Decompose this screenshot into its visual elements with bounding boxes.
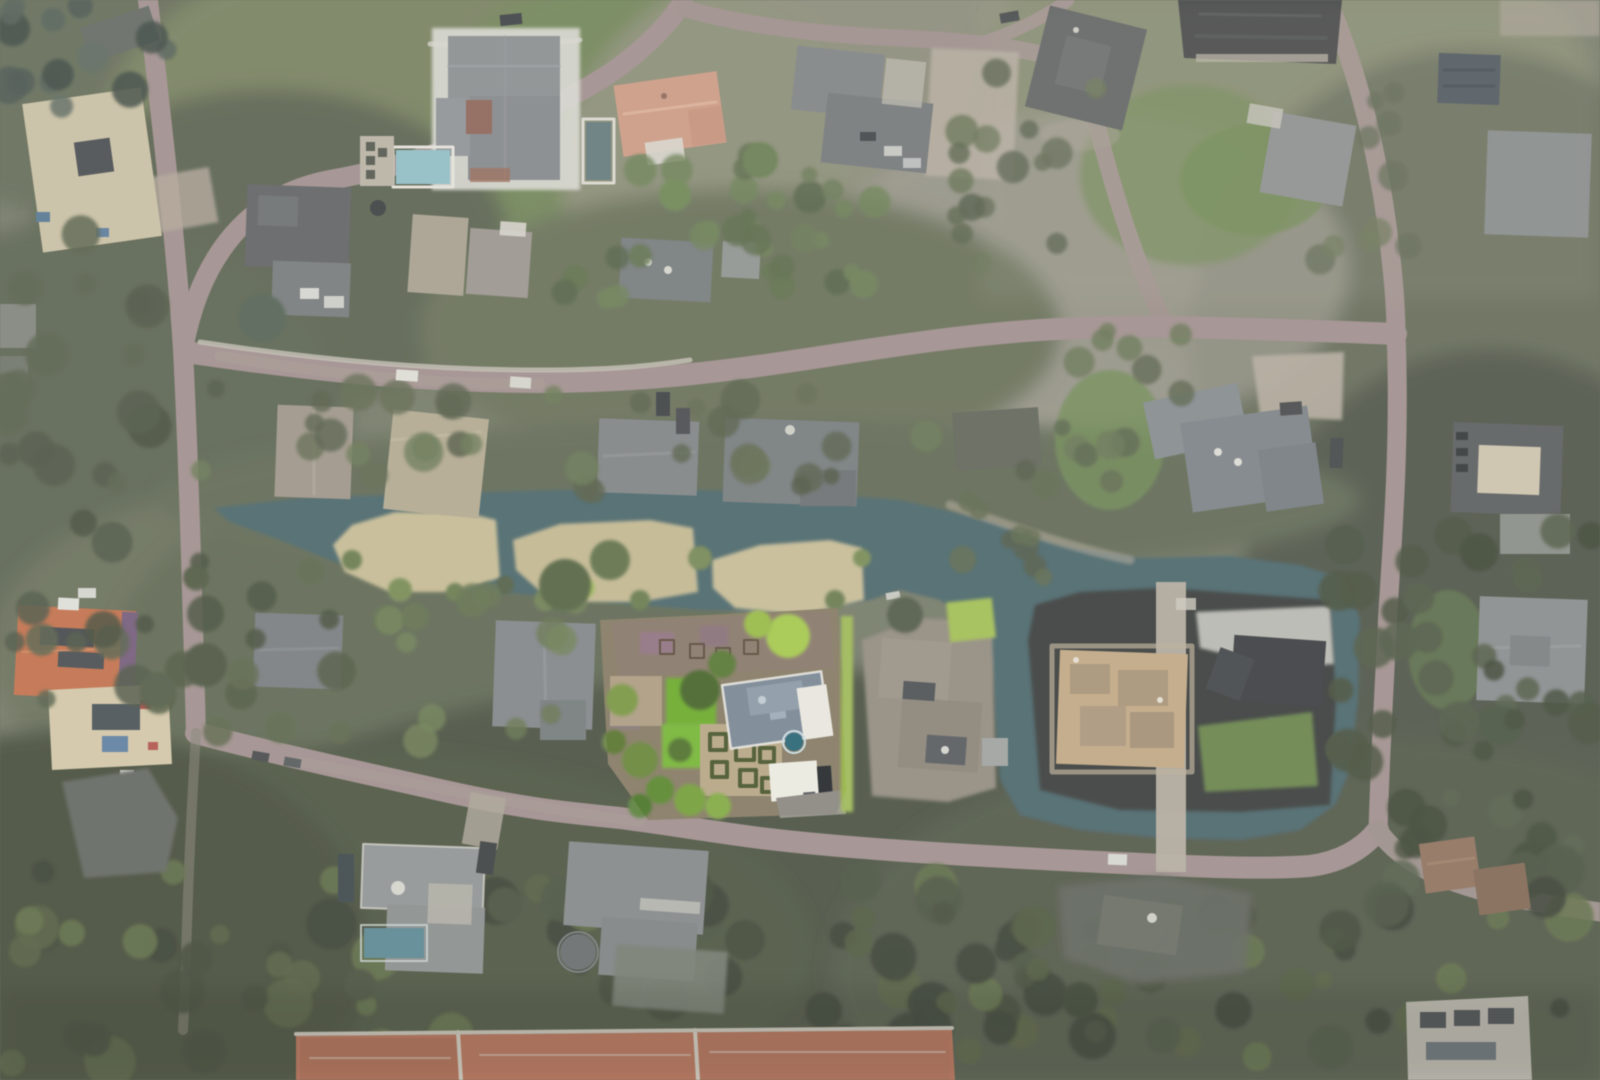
- aerial-imagery: [0, 0, 1600, 1080]
- haze-overlay-with-parcel-cutout: [0, 0, 1600, 1080]
- layer-atmosphere: [0, 0, 1600, 1080]
- aerial-map-view[interactable]: [0, 0, 1600, 1080]
